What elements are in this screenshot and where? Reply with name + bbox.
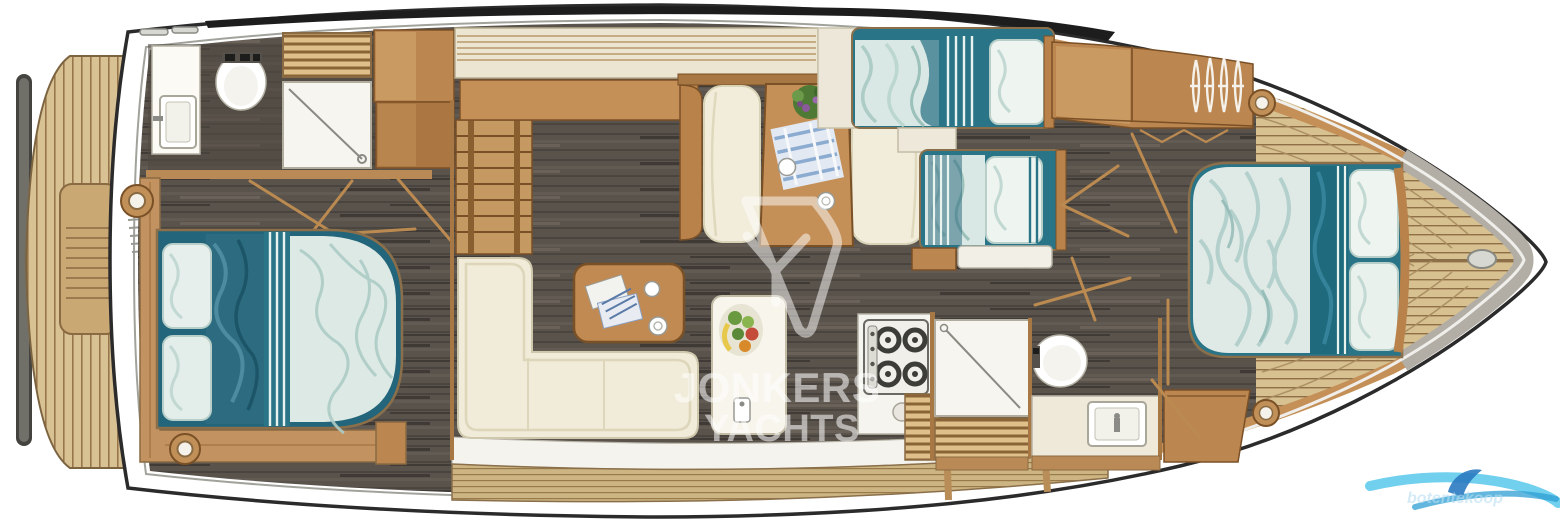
svg-text:JONKERS: JONKERS: [674, 364, 881, 411]
svg-text:YACHTS: YACHTS: [704, 408, 860, 450]
svg-text:botentekoop: botentekoop: [1407, 490, 1503, 507]
